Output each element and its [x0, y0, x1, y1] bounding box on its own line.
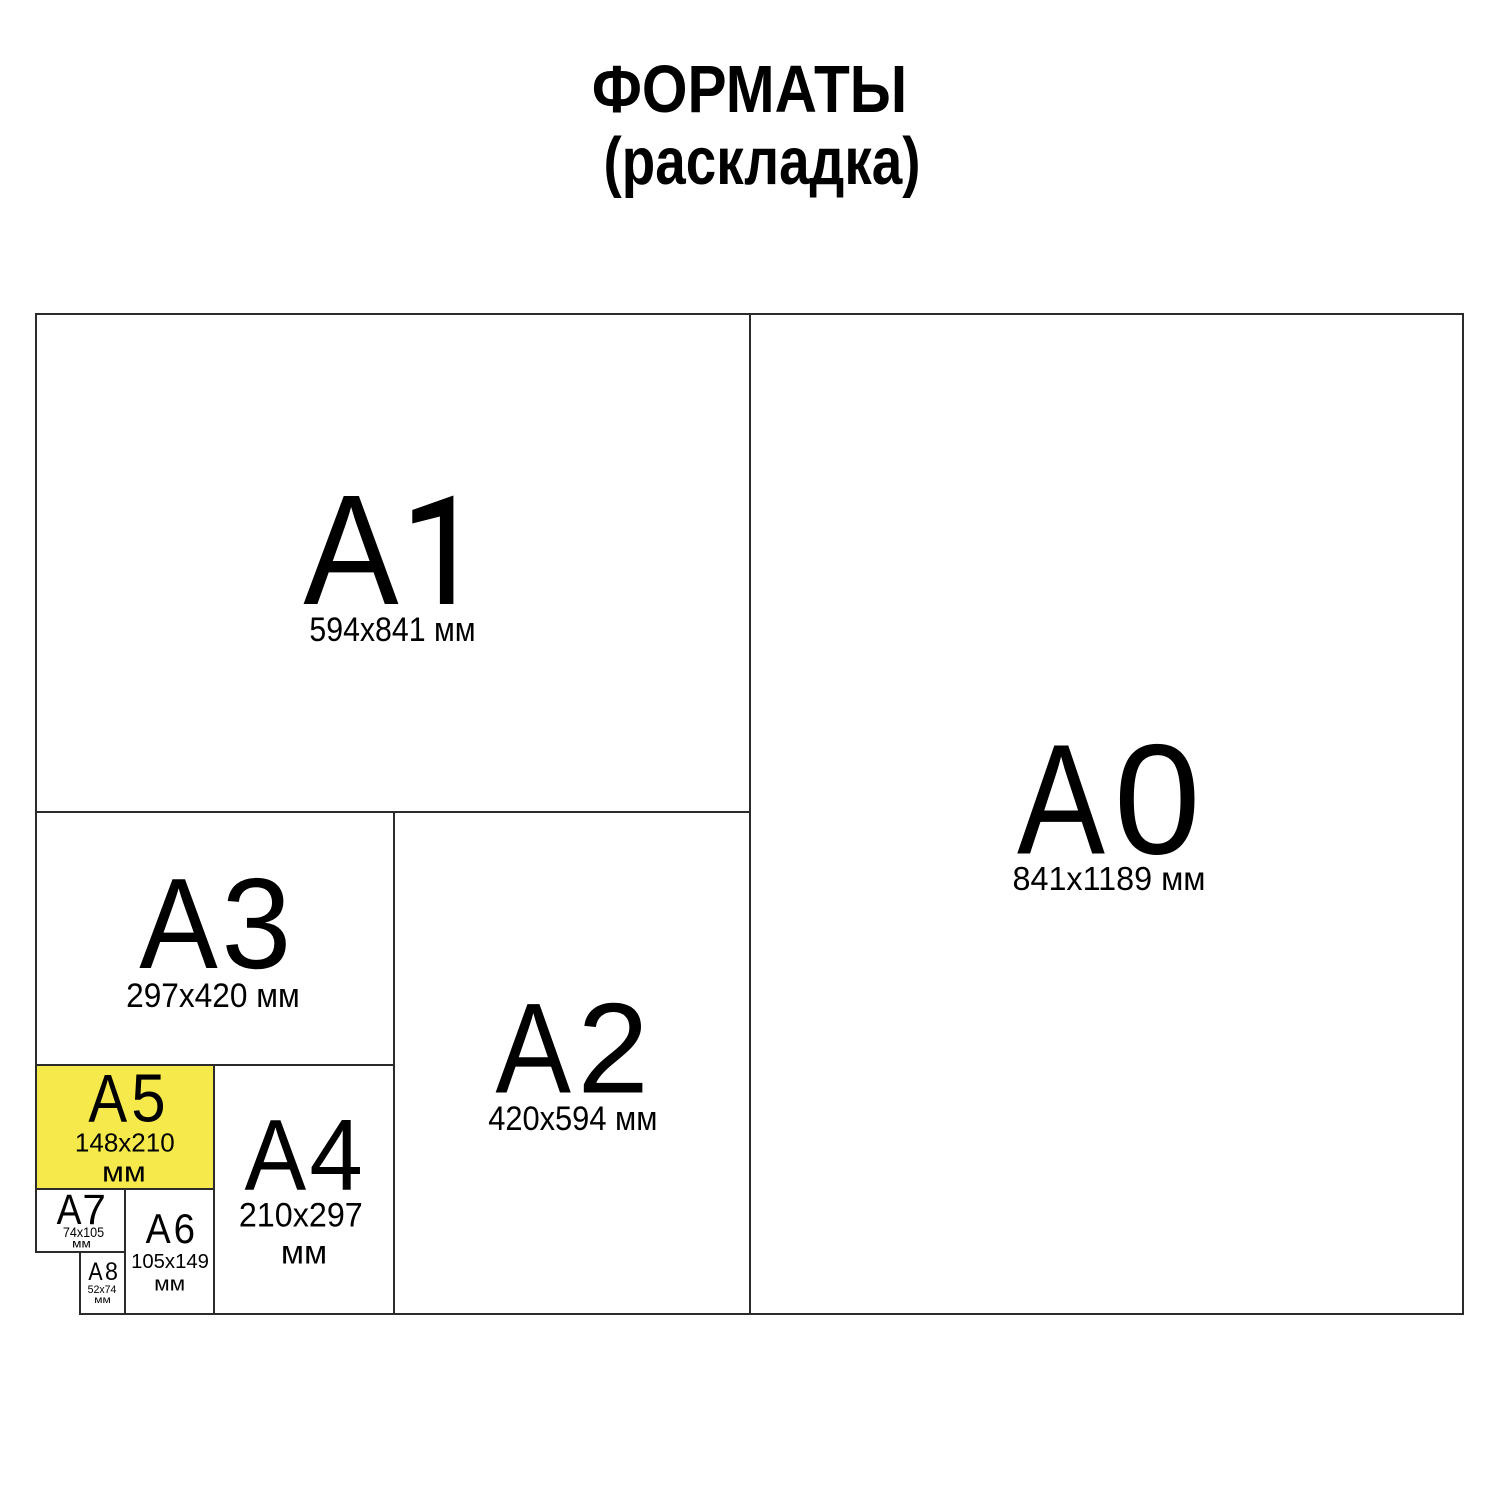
svg-text:(раскладка): (раскладка)	[604, 124, 921, 198]
svg-text:А: А	[146, 1206, 171, 1252]
svg-text:105х149: 105х149	[131, 1250, 209, 1273]
svg-text:3: 3	[221, 851, 291, 995]
svg-text:297х420 мм: 297х420 мм	[126, 976, 300, 1014]
svg-text:мм: мм	[102, 1156, 146, 1188]
svg-text:4: 4	[309, 1099, 362, 1212]
svg-text:А: А	[88, 1061, 127, 1136]
svg-text:8: 8	[105, 1258, 118, 1286]
svg-text:420х594 мм: 420х594 мм	[488, 1099, 657, 1137]
svg-text:мм: мм	[154, 1273, 185, 1295]
svg-text:148х210: 148х210	[75, 1128, 175, 1158]
svg-text:841х1189 мм: 841х1189 мм	[1012, 860, 1205, 897]
svg-text:6: 6	[174, 1205, 195, 1252]
svg-text:мм: мм	[281, 1235, 327, 1272]
svg-text:210х297: 210х297	[239, 1197, 363, 1235]
svg-text:А: А	[245, 1098, 307, 1212]
svg-text:5: 5	[131, 1060, 165, 1136]
svg-text:ФОРМАТЫ: ФОРМАТЫ	[592, 52, 907, 127]
svg-text:А: А	[139, 852, 218, 996]
svg-text:594х841 мм: 594х841 мм	[309, 610, 475, 648]
svg-text:мм: мм	[94, 1295, 110, 1306]
svg-text:мм: мм	[72, 1236, 91, 1250]
svg-text:А: А	[88, 1257, 103, 1285]
